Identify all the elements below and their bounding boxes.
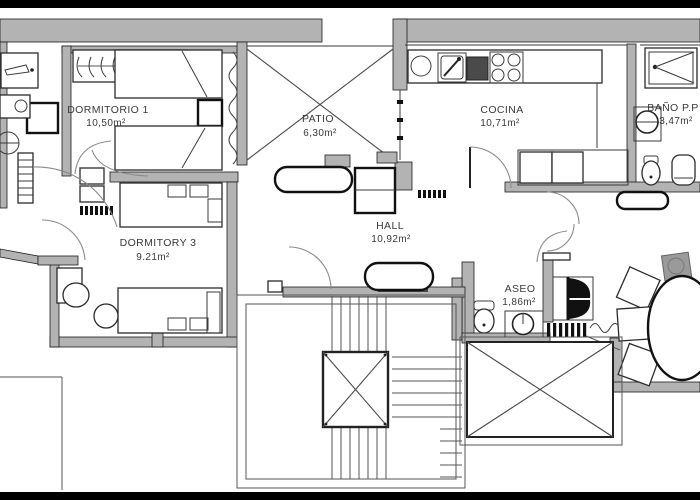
room-label-dormitory3: DORMITORY 3 bbox=[120, 237, 197, 249]
room-label-banop: BAÑO P.P bbox=[647, 101, 698, 114]
worktop-icon bbox=[467, 57, 488, 80]
door-arc-icon bbox=[289, 247, 331, 289]
cabinet-icon bbox=[355, 168, 395, 213]
double-door-icon bbox=[553, 277, 593, 320]
room-area-dormitorio1: 10,50m² bbox=[86, 118, 126, 129]
room-area-patio: 6,30m² bbox=[303, 128, 337, 139]
console-bench-icon bbox=[275, 167, 352, 192]
window-icon bbox=[397, 90, 403, 160]
terrace-outline bbox=[0, 377, 62, 490]
bed-icon bbox=[115, 126, 222, 170]
cabinet-icon bbox=[1, 53, 38, 88]
chair-icon bbox=[617, 307, 652, 341]
towel-rail-icon bbox=[18, 153, 33, 203]
bed-icon bbox=[115, 50, 222, 98]
radiator-icon bbox=[418, 190, 446, 198]
door-icon bbox=[537, 231, 570, 262]
room-area-banop: 3,47m² bbox=[659, 116, 693, 127]
door-frame bbox=[268, 281, 282, 292]
room-label-cocina: COCINA bbox=[480, 104, 523, 116]
radiator-icon bbox=[547, 323, 586, 337]
room-label-aseo: ASEO bbox=[505, 283, 536, 295]
shaft-icon bbox=[460, 337, 622, 445]
planter-bench-icon bbox=[365, 263, 433, 290]
room-label-hall: HALL bbox=[376, 220, 404, 232]
room-area-hall: 10,92m² bbox=[371, 234, 411, 245]
stair-steps-icon bbox=[392, 357, 462, 477]
chair-icon bbox=[63, 283, 89, 307]
room-label-dormitorio1: DORMITORIO 1 bbox=[67, 104, 149, 116]
toilet-icon bbox=[474, 301, 494, 333]
bed-icon bbox=[120, 183, 222, 227]
door-arc-icon bbox=[42, 220, 85, 260]
room-label-patio: PATIO bbox=[302, 113, 334, 125]
floor-plan: DORMITORIO 1 10,50m² PATIO 6,30m² COCINA… bbox=[0, 0, 700, 500]
room-patio bbox=[247, 46, 403, 167]
sink-icon bbox=[0, 95, 30, 118]
entry-door-icon bbox=[547, 192, 579, 251]
curtain-icon bbox=[229, 52, 237, 164]
elevator-shaft-icon bbox=[323, 352, 388, 427]
shaft-column-icon bbox=[27, 103, 58, 133]
bidet-icon bbox=[672, 155, 695, 185]
bottom-border bbox=[0, 492, 700, 500]
bench-icon bbox=[617, 192, 668, 209]
bed-icon bbox=[118, 288, 222, 333]
room-area-cocina: 10,71m² bbox=[480, 118, 520, 129]
wall-stub bbox=[377, 152, 397, 163]
room-area-dormitory3: 9.21m² bbox=[136, 252, 170, 263]
toilet-icon bbox=[642, 156, 660, 185]
shower-icon bbox=[645, 48, 697, 88]
nightstand-icon bbox=[198, 100, 222, 126]
room-area-aseo: 1,86m² bbox=[502, 297, 536, 308]
floor-plan-page: DORMITORIO 1 10,50m² PATIO 6,30m² COCINA… bbox=[0, 0, 700, 500]
stool-icon bbox=[94, 304, 118, 328]
wall-stub bbox=[325, 155, 350, 167]
kitchen-counter-icon bbox=[408, 50, 602, 83]
top-border bbox=[0, 0, 700, 8]
kitchen-table-icon bbox=[518, 150, 628, 185]
